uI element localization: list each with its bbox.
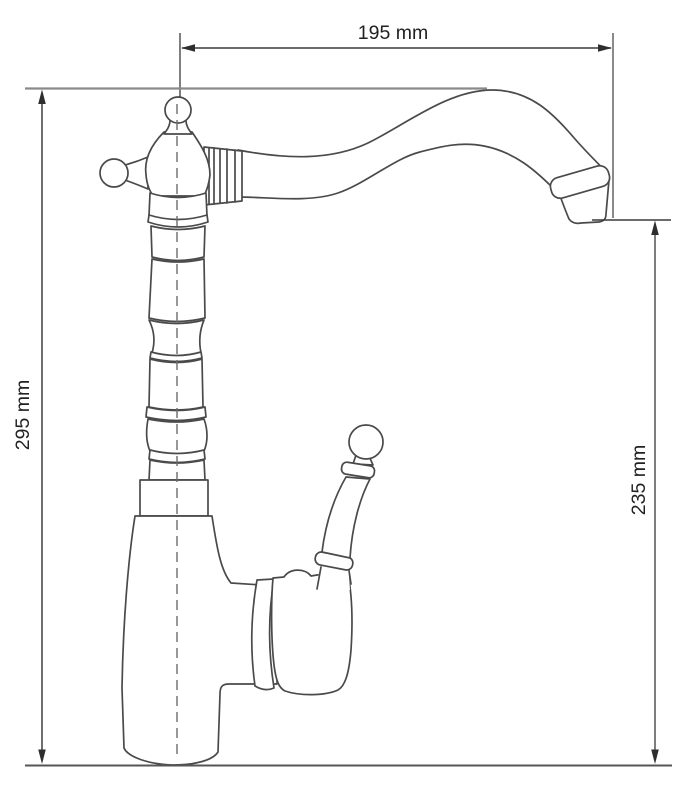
arrow-down-icon bbox=[651, 750, 659, 765]
dimension-label-spout-reach: 195 mm bbox=[358, 22, 428, 44]
lever-handle bbox=[314, 425, 383, 593]
column-collar-block bbox=[140, 480, 208, 516]
finial-ball bbox=[165, 97, 191, 123]
head-rim-band bbox=[149, 193, 207, 221]
faucet-dimension-drawing-page: 195 mm 295 mm 235 mm bbox=[0, 0, 689, 800]
dimension-label-overall-height: 295 mm bbox=[12, 380, 34, 450]
valve-head-body bbox=[146, 132, 210, 196]
spout-tube bbox=[238, 90, 605, 199]
arrow-down-icon bbox=[38, 750, 46, 765]
dimension-label-outlet-height: 235 mm bbox=[628, 445, 650, 515]
arrow-up-icon bbox=[38, 90, 46, 105]
arrow-right-icon bbox=[598, 44, 612, 52]
arrow-up-icon bbox=[651, 221, 659, 236]
handle-grip bbox=[322, 477, 370, 558]
arrow-left-icon bbox=[181, 44, 195, 52]
handle-ball bbox=[349, 425, 383, 459]
faucet-dimension-drawing: 195 mm 295 mm 235 mm bbox=[0, 0, 689, 800]
side-knob-ball bbox=[100, 159, 128, 187]
dimension-outlet-height: 235 mm bbox=[592, 220, 671, 764]
